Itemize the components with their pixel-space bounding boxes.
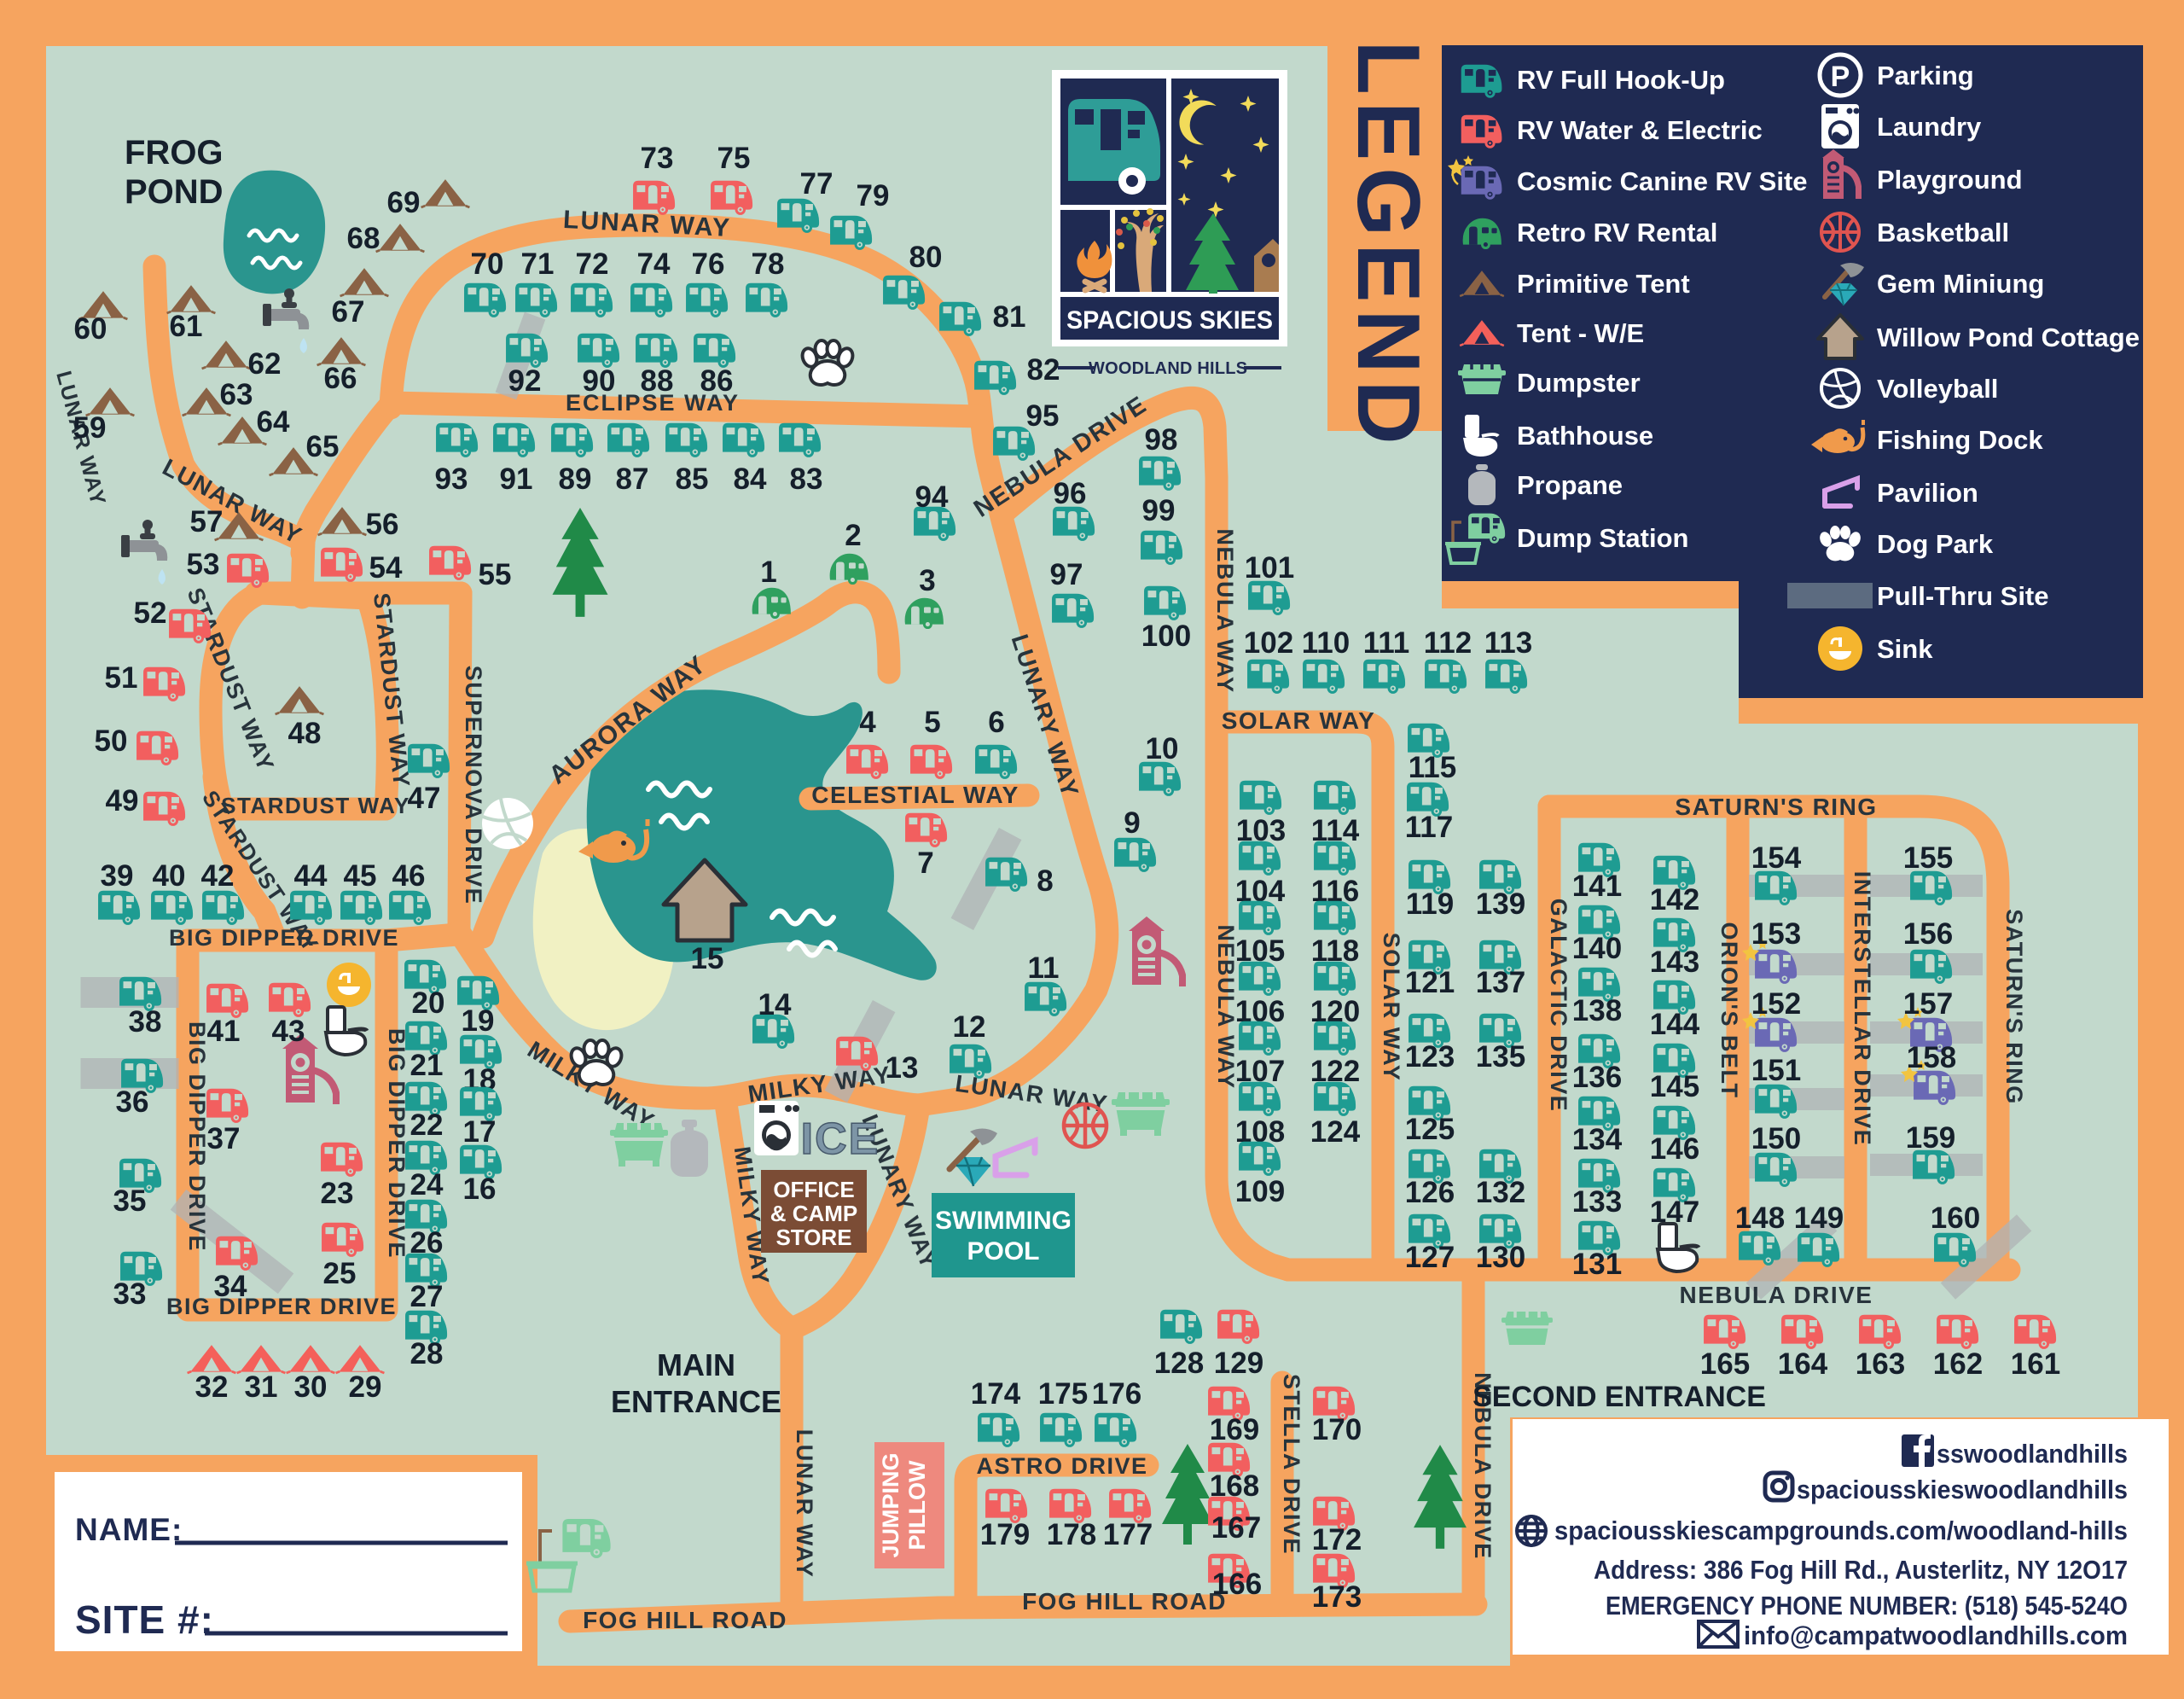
svg-text:79: 79: [857, 179, 890, 212]
svg-text:127: 127: [1405, 1241, 1455, 1274]
svg-text:& CAMP: & CAMP: [770, 1201, 858, 1226]
svg-text:23: 23: [321, 1177, 354, 1210]
svg-text:Parking: Parking: [1877, 61, 1974, 90]
svg-text:165: 165: [1700, 1347, 1750, 1381]
svg-text:17: 17: [463, 1115, 497, 1149]
svg-text:INTERSTELLAR DRIVE: INTERSTELLAR DRIVE: [1850, 871, 1875, 1147]
svg-text:61: 61: [170, 310, 203, 343]
svg-text:53: 53: [187, 548, 220, 581]
svg-text:Address: 386 Fog Hill Rd., Aus: Address: 386 Fog Hill Rd., Austerlitz, N…: [1594, 1555, 2128, 1585]
svg-text:92: 92: [508, 364, 542, 398]
svg-text:ENTRANCE: ENTRANCE: [611, 1384, 781, 1419]
svg-text:30: 30: [294, 1370, 328, 1404]
svg-text:144: 144: [1650, 1008, 1700, 1041]
svg-text:Bathhouse: Bathhouse: [1517, 421, 1653, 451]
svg-text:46: 46: [392, 859, 426, 893]
svg-text:Laundry: Laundry: [1877, 112, 1982, 142]
svg-text:87: 87: [616, 463, 649, 496]
svg-text:93: 93: [435, 463, 468, 496]
svg-text:178: 178: [1047, 1518, 1096, 1551]
svg-text:174: 174: [971, 1377, 1021, 1411]
svg-text:77: 77: [800, 167, 834, 201]
svg-text:52: 52: [134, 596, 167, 630]
svg-text:132: 132: [1476, 1176, 1525, 1209]
svg-text:GALACTIC DRIVE: GALACTIC DRIVE: [1546, 899, 1571, 1113]
svg-text:133: 133: [1572, 1185, 1622, 1219]
svg-text:SATURN'S RING: SATURN'S RING: [1675, 794, 1877, 820]
svg-text:12: 12: [953, 1010, 986, 1044]
svg-text:1: 1: [760, 556, 776, 589]
svg-text:148: 148: [1735, 1202, 1785, 1235]
svg-text:36: 36: [116, 1085, 149, 1119]
svg-text:POOL: POOL: [967, 1237, 1039, 1266]
svg-text:NEBULA WAY: NEBULA WAY: [1212, 528, 1238, 693]
svg-text:39: 39: [101, 859, 134, 893]
svg-text:72: 72: [576, 247, 609, 281]
svg-text:Pavilion: Pavilion: [1877, 478, 1978, 508]
svg-text:spaciousskieswoodlandhills: spaciousskieswoodlandhills: [1797, 1475, 2128, 1504]
svg-text:STELLA DRIVE: STELLA DRIVE: [1279, 1374, 1304, 1555]
svg-text:FOG HILL ROAD: FOG HILL ROAD: [1022, 1588, 1227, 1615]
svg-text:139: 139: [1476, 887, 1525, 921]
svg-text:7: 7: [917, 847, 933, 880]
svg-text:66: 66: [324, 362, 357, 395]
svg-text:73: 73: [641, 142, 674, 175]
svg-text:25: 25: [323, 1257, 357, 1290]
svg-text:175: 175: [1038, 1377, 1088, 1411]
svg-text:35: 35: [113, 1184, 147, 1218]
svg-text:146: 146: [1650, 1132, 1699, 1166]
svg-text:151: 151: [1751, 1054, 1801, 1087]
svg-text:167: 167: [1211, 1511, 1261, 1545]
svg-text:RV Full Hook-Up: RV Full Hook-Up: [1517, 65, 1725, 95]
svg-text:BIG DIPPER DRIVE: BIG DIPPER DRIVE: [169, 925, 399, 951]
svg-text:Primitive Tent: Primitive Tent: [1517, 269, 1690, 299]
svg-text:153: 153: [1751, 917, 1801, 951]
svg-text:sswoodlandhills: sswoodlandhills: [1937, 1439, 2128, 1469]
svg-text:21: 21: [410, 1049, 444, 1082]
svg-text:111: 111: [1363, 626, 1410, 660]
svg-text:97: 97: [1050, 558, 1083, 591]
svg-text:ORION'S BELT: ORION'S BELT: [1716, 922, 1742, 1099]
svg-text:LUNAR WAY: LUNAR WAY: [792, 1429, 817, 1579]
svg-text:29: 29: [349, 1370, 382, 1404]
svg-text:SATURN'S RING: SATURN'S RING: [2001, 909, 2027, 1104]
svg-text:78: 78: [752, 247, 785, 281]
svg-text:spaciousskiescampgrounds.com/w: spaciousskiescampgrounds.com/woodland-hi…: [1554, 1516, 2128, 1545]
svg-text:Dump Station: Dump Station: [1517, 523, 1689, 553]
svg-text:SUPERNOVA DRIVE: SUPERNOVA DRIVE: [461, 666, 486, 905]
svg-text:95: 95: [1026, 399, 1060, 433]
svg-text:SOLAR WAY: SOLAR WAY: [1222, 707, 1376, 734]
svg-text:Cosmic Canine RV Site: Cosmic Canine RV Site: [1517, 166, 1808, 196]
svg-text:15: 15: [691, 942, 724, 975]
svg-text:Sink: Sink: [1877, 634, 1933, 664]
svg-text:155: 155: [1903, 841, 1953, 875]
svg-text:Basketball: Basketball: [1877, 218, 2009, 247]
svg-text:149: 149: [1794, 1202, 1844, 1235]
svg-text:109: 109: [1235, 1175, 1285, 1208]
svg-text:85: 85: [676, 463, 709, 496]
svg-text:156: 156: [1903, 917, 1953, 951]
svg-text:34: 34: [214, 1270, 247, 1303]
svg-text:2: 2: [845, 519, 861, 552]
svg-text:69: 69: [387, 186, 421, 219]
svg-text:56: 56: [366, 508, 399, 541]
svg-text:150: 150: [1751, 1122, 1801, 1155]
svg-text:138: 138: [1572, 994, 1622, 1027]
svg-text:43: 43: [272, 1015, 305, 1048]
svg-text:P: P: [1831, 61, 1850, 93]
svg-text:161: 161: [2011, 1347, 2060, 1381]
svg-text:Dumpster: Dumpster: [1517, 368, 1641, 398]
svg-text:55: 55: [479, 558, 512, 591]
svg-text:143: 143: [1650, 946, 1699, 979]
svg-text:115: 115: [1409, 751, 1456, 784]
svg-text:117: 117: [1405, 811, 1453, 844]
svg-text:20: 20: [412, 986, 445, 1020]
svg-text:14: 14: [758, 988, 792, 1021]
svg-text:160: 160: [1931, 1202, 1980, 1235]
svg-text:Volleyball: Volleyball: [1877, 374, 1998, 404]
svg-text:PILLOW: PILLOW: [904, 1460, 930, 1550]
svg-text:SPACIOUS SKIES: SPACIOUS SKIES: [1066, 306, 1273, 335]
svg-text:BIG DIPPER DRIVE: BIG DIPPER DRIVE: [166, 1294, 397, 1319]
svg-text:82: 82: [1027, 353, 1060, 387]
svg-text:152: 152: [1751, 987, 1801, 1021]
svg-text:Pull-Thru Site: Pull-Thru Site: [1877, 581, 2049, 611]
svg-text:71: 71: [521, 247, 555, 281]
svg-text:60: 60: [74, 312, 107, 346]
svg-text:5: 5: [924, 706, 940, 739]
svg-text:38: 38: [129, 1005, 162, 1039]
svg-text:164: 164: [1778, 1347, 1828, 1381]
svg-text:68: 68: [347, 222, 380, 255]
svg-text:112: 112: [1424, 626, 1472, 660]
svg-text:POND: POND: [125, 173, 224, 211]
svg-text:62: 62: [248, 347, 282, 381]
svg-text:SOLAR WAY: SOLAR WAY: [1379, 933, 1404, 1082]
svg-text:157: 157: [1903, 987, 1953, 1021]
svg-text:81: 81: [993, 300, 1026, 334]
svg-text:ASTRO DRIVE: ASTRO DRIVE: [976, 1453, 1147, 1479]
svg-text:Gem Miniung: Gem Miniung: [1877, 269, 2044, 299]
svg-text:130: 130: [1476, 1241, 1525, 1274]
svg-text:info@campatwoodlandhills.com: info@campatwoodlandhills.com: [1744, 1620, 2128, 1650]
svg-text:37: 37: [207, 1122, 241, 1155]
svg-text:Tent - W/E: Tent - W/E: [1517, 318, 1644, 348]
svg-text:SITE #:: SITE #:: [75, 1597, 214, 1642]
svg-text:176: 176: [1092, 1377, 1141, 1411]
svg-text:Willow Pond Cottage: Willow Pond Cottage: [1877, 323, 2140, 352]
svg-text:98: 98: [1145, 423, 1178, 457]
svg-text:13: 13: [886, 1051, 919, 1085]
svg-text:166: 166: [1212, 1568, 1262, 1601]
svg-text:96: 96: [1054, 477, 1087, 510]
svg-text:57: 57: [190, 505, 224, 538]
svg-text:JUMPING: JUMPING: [878, 1452, 903, 1557]
svg-text:NAME:: NAME:: [75, 1512, 183, 1547]
svg-text:102: 102: [1244, 626, 1293, 660]
svg-text:3: 3: [919, 564, 935, 597]
svg-text:159: 159: [1906, 1121, 1955, 1155]
svg-text:100: 100: [1141, 620, 1191, 653]
svg-text:27: 27: [410, 1280, 444, 1313]
svg-text:4: 4: [859, 706, 876, 739]
svg-text:SWIMMING: SWIMMING: [935, 1207, 1072, 1235]
svg-text:173: 173: [1312, 1580, 1362, 1614]
svg-text:LEGEND: LEGEND: [1339, 40, 1438, 451]
svg-text:BIG DIPPER DRIVE: BIG DIPPER DRIVE: [184, 1021, 210, 1252]
svg-text:19: 19: [462, 1004, 495, 1038]
svg-text:88: 88: [641, 364, 674, 398]
svg-text:75: 75: [717, 142, 751, 175]
svg-text:65: 65: [306, 430, 340, 463]
svg-text:41: 41: [207, 1015, 241, 1048]
svg-text:141: 141: [1572, 870, 1622, 903]
svg-text:45: 45: [344, 859, 377, 893]
svg-text:STARDUST WAY: STARDUST WAY: [221, 793, 410, 818]
svg-text:158: 158: [1907, 1041, 1956, 1074]
svg-text:FOG HILL ROAD: FOG HILL ROAD: [583, 1607, 787, 1633]
svg-text:Fishing Dock: Fishing Dock: [1877, 425, 2043, 455]
svg-text:84: 84: [734, 463, 767, 496]
svg-text:63: 63: [220, 378, 253, 411]
svg-text:80: 80: [909, 241, 943, 274]
svg-text:154: 154: [1751, 841, 1802, 875]
svg-text:48: 48: [288, 717, 322, 750]
svg-text:76: 76: [692, 247, 725, 281]
svg-text:70: 70: [471, 247, 504, 281]
svg-text:134: 134: [1572, 1123, 1623, 1156]
svg-text:51: 51: [105, 661, 138, 695]
svg-text:SECOND ENTRANCE: SECOND ENTRANCE: [1472, 1381, 1766, 1413]
svg-text:50: 50: [95, 724, 128, 758]
svg-text:129: 129: [1214, 1347, 1263, 1380]
svg-text:90: 90: [583, 364, 616, 398]
svg-text:86: 86: [700, 364, 734, 398]
svg-text:140: 140: [1572, 932, 1622, 965]
svg-text:99: 99: [1142, 494, 1176, 527]
svg-text:EMERGENCY PHONE NUMBER: (518): EMERGENCY PHONE NUMBER: (518) 545-524O: [1606, 1591, 2128, 1620]
svg-text:136: 136: [1572, 1061, 1622, 1094]
svg-text:137: 137: [1476, 966, 1525, 999]
svg-text:11: 11: [1028, 951, 1060, 985]
svg-text:49: 49: [106, 784, 139, 817]
svg-text:Retro RV Rental: Retro RV Rental: [1517, 218, 1717, 247]
svg-text:110: 110: [1302, 626, 1350, 660]
svg-text:28: 28: [410, 1337, 444, 1370]
svg-text:64: 64: [257, 405, 290, 439]
svg-text:10: 10: [1146, 732, 1179, 765]
svg-text:89: 89: [559, 463, 592, 496]
svg-text:54: 54: [369, 551, 403, 585]
svg-text:9: 9: [1124, 806, 1140, 840]
svg-text:Dog Park: Dog Park: [1877, 529, 1994, 559]
svg-text:74: 74: [637, 247, 671, 281]
svg-text:83: 83: [790, 463, 823, 496]
svg-text:162: 162: [1933, 1347, 1983, 1381]
svg-text:101: 101: [1245, 551, 1294, 585]
svg-text:170: 170: [1312, 1413, 1362, 1446]
svg-text:119: 119: [1406, 887, 1454, 921]
svg-text:MAIN: MAIN: [657, 1347, 735, 1382]
svg-text:125: 125: [1405, 1113, 1455, 1146]
svg-text:Playground: Playground: [1877, 165, 2023, 195]
svg-text:FROG: FROG: [125, 134, 224, 172]
svg-text:142: 142: [1650, 883, 1699, 916]
svg-text:24: 24: [410, 1168, 444, 1202]
svg-text:172: 172: [1312, 1523, 1362, 1556]
svg-text:147: 147: [1650, 1196, 1699, 1229]
svg-text:40: 40: [153, 859, 186, 893]
svg-text:OFFICE: OFFICE: [773, 1177, 854, 1202]
svg-text:59: 59: [73, 411, 107, 445]
svg-text:WOODLAND HILLS: WOODLAND HILLS: [1089, 359, 1251, 378]
svg-text:67: 67: [332, 295, 365, 329]
svg-text:121: 121: [1405, 966, 1455, 999]
svg-text:16: 16: [463, 1172, 497, 1206]
svg-text:8: 8: [1037, 864, 1053, 898]
svg-text:163: 163: [1856, 1347, 1905, 1381]
svg-text:94: 94: [915, 480, 949, 514]
svg-text:131: 131: [1572, 1248, 1622, 1281]
svg-text:169: 169: [1210, 1413, 1259, 1446]
svg-text:126: 126: [1405, 1176, 1455, 1209]
svg-text:Propane: Propane: [1517, 470, 1623, 500]
svg-text:47: 47: [408, 782, 441, 815]
svg-text:113: 113: [1484, 626, 1532, 660]
svg-text:124: 124: [1310, 1115, 1361, 1149]
svg-text:91: 91: [500, 463, 533, 496]
svg-text:177: 177: [1103, 1518, 1153, 1551]
svg-text:32: 32: [195, 1370, 229, 1404]
svg-text:42: 42: [201, 859, 235, 893]
svg-text:22: 22: [410, 1108, 444, 1142]
svg-text:STORE: STORE: [775, 1225, 851, 1250]
svg-text:31: 31: [245, 1370, 278, 1404]
svg-text:44: 44: [294, 859, 328, 893]
svg-text:145: 145: [1650, 1070, 1699, 1103]
svg-text:135: 135: [1476, 1040, 1525, 1074]
svg-text:ICE: ICE: [801, 1114, 880, 1164]
svg-text:123: 123: [1405, 1040, 1455, 1074]
svg-text:128: 128: [1154, 1347, 1204, 1380]
svg-text:NEBULA DRIVE: NEBULA DRIVE: [1680, 1282, 1873, 1308]
svg-text:179: 179: [980, 1518, 1030, 1551]
svg-text:CELESTIAL WAY: CELESTIAL WAY: [811, 782, 1019, 808]
svg-text:6: 6: [988, 706, 1004, 739]
svg-text:RV Water & Electric: RV Water & Electric: [1517, 115, 1763, 145]
svg-text:33: 33: [113, 1277, 147, 1311]
